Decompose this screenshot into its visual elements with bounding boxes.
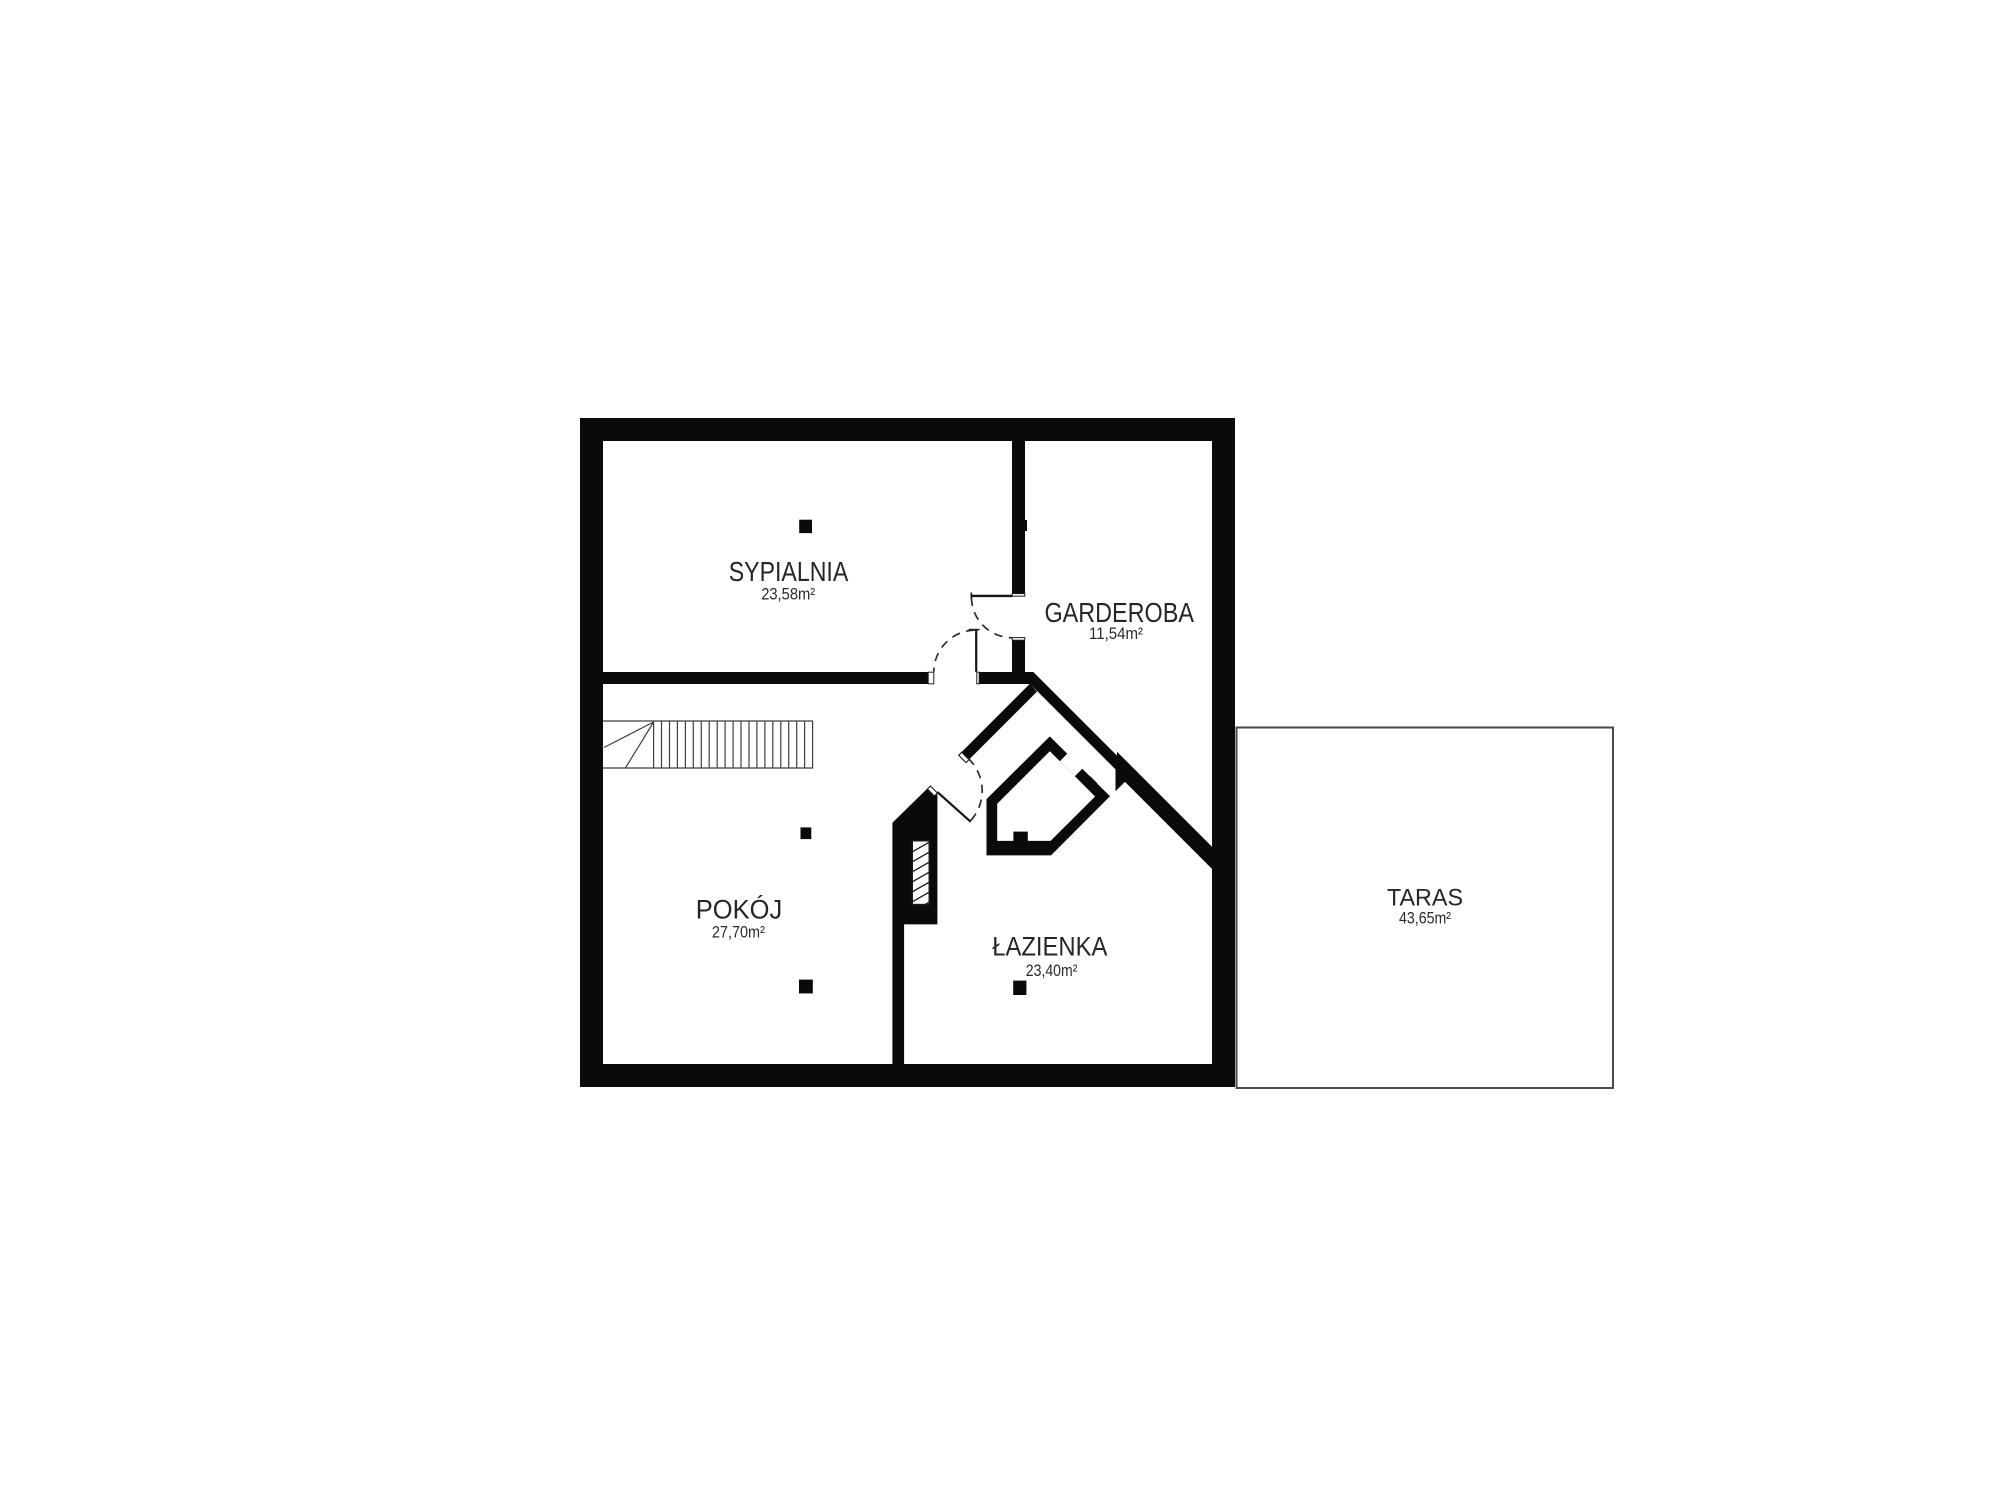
svg-text:ŁAZIENKA: ŁAZIENKA	[992, 931, 1107, 961]
svg-text:23,40m²: 23,40m²	[1026, 962, 1078, 980]
svg-text:27,70m²: 27,70m²	[712, 924, 765, 942]
svg-text:TARAS: TARAS	[1387, 885, 1463, 912]
svg-text:POKÓJ: POKÓJ	[696, 894, 782, 924]
svg-text:43,65m²: 43,65m²	[1399, 910, 1451, 928]
svg-text:23,58m²: 23,58m²	[761, 586, 815, 604]
svg-text:11,54m²: 11,54m²	[1089, 625, 1143, 643]
svg-text:SYPIALNIA: SYPIALNIA	[729, 556, 849, 587]
svg-text:GARDEROBA: GARDEROBA	[1044, 597, 1194, 628]
